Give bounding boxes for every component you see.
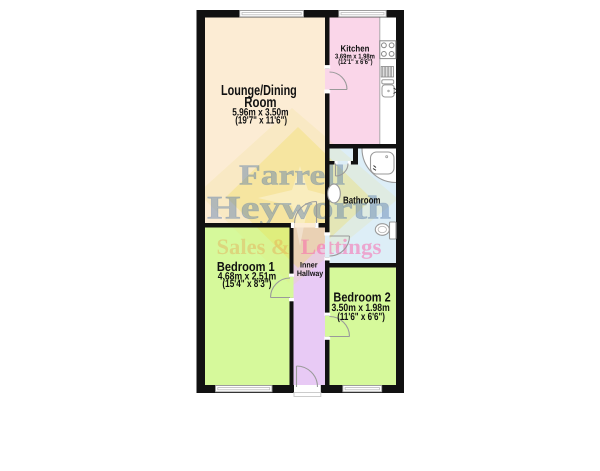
- svg-text:Lettings: Lettings: [301, 234, 382, 259]
- svg-text:(11'6" x 6'6"): (11'6" x 6'6"): [337, 311, 385, 323]
- svg-text:Kitchen: Kitchen: [341, 43, 370, 53]
- svg-text:(19'7" x 11'6"): (19'7" x 11'6"): [235, 115, 287, 127]
- svg-text:(15'4" x 8'3"): (15'4" x 8'3"): [222, 278, 271, 290]
- svg-text:(12'1" x 6'6"): (12'1" x 6'6"): [338, 58, 372, 66]
- svg-text:Sales &: Sales &: [217, 234, 290, 259]
- svg-text:Hallway: Hallway: [297, 269, 324, 278]
- svg-text:Bathroom: Bathroom: [343, 196, 381, 207]
